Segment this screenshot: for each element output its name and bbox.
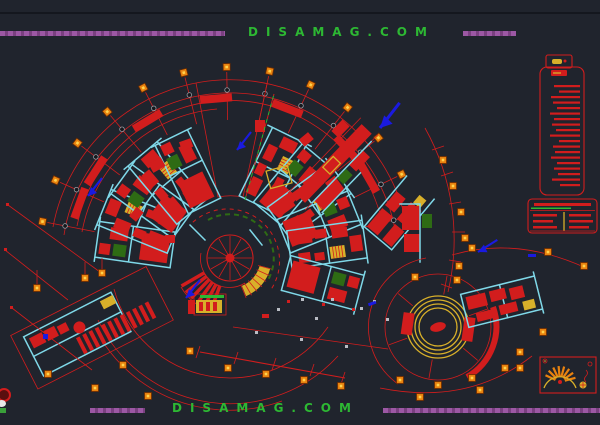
top-purple-bar-right (463, 31, 516, 36)
inner-stair-block (188, 294, 226, 315)
bottom-watermark-text: DISAMAG.COM (172, 401, 359, 415)
bottom-purple-bar-right (383, 408, 600, 413)
top-watermark: DISAMAG.COM (0, 25, 600, 41)
top-purple-bar-left (0, 31, 225, 36)
bottom-purple-bar-left (90, 408, 145, 413)
curved-stair (241, 266, 272, 298)
bottom-dimension-lines (196, 327, 388, 384)
floor-plan-canvas (0, 0, 600, 425)
cad-viewport: DISAMAG.COM DISAMAG.COM (0, 0, 600, 425)
fan-ornament-icon (545, 366, 575, 381)
ornament-stamp (540, 357, 596, 393)
blue-arrow-icon (237, 132, 251, 150)
blue-arrow-icon (380, 103, 400, 128)
grid-arcs (53, 80, 586, 411)
blue-arrow-icon (478, 235, 497, 257)
legend-notes-panel (540, 67, 584, 195)
legend-icon-box (546, 55, 572, 68)
spec-table (528, 199, 597, 233)
top-watermark-text: DISAMAG.COM (248, 25, 435, 39)
bottom-watermark: DISAMAG.COM (0, 401, 600, 417)
corner-logo-green-icon (0, 408, 6, 413)
